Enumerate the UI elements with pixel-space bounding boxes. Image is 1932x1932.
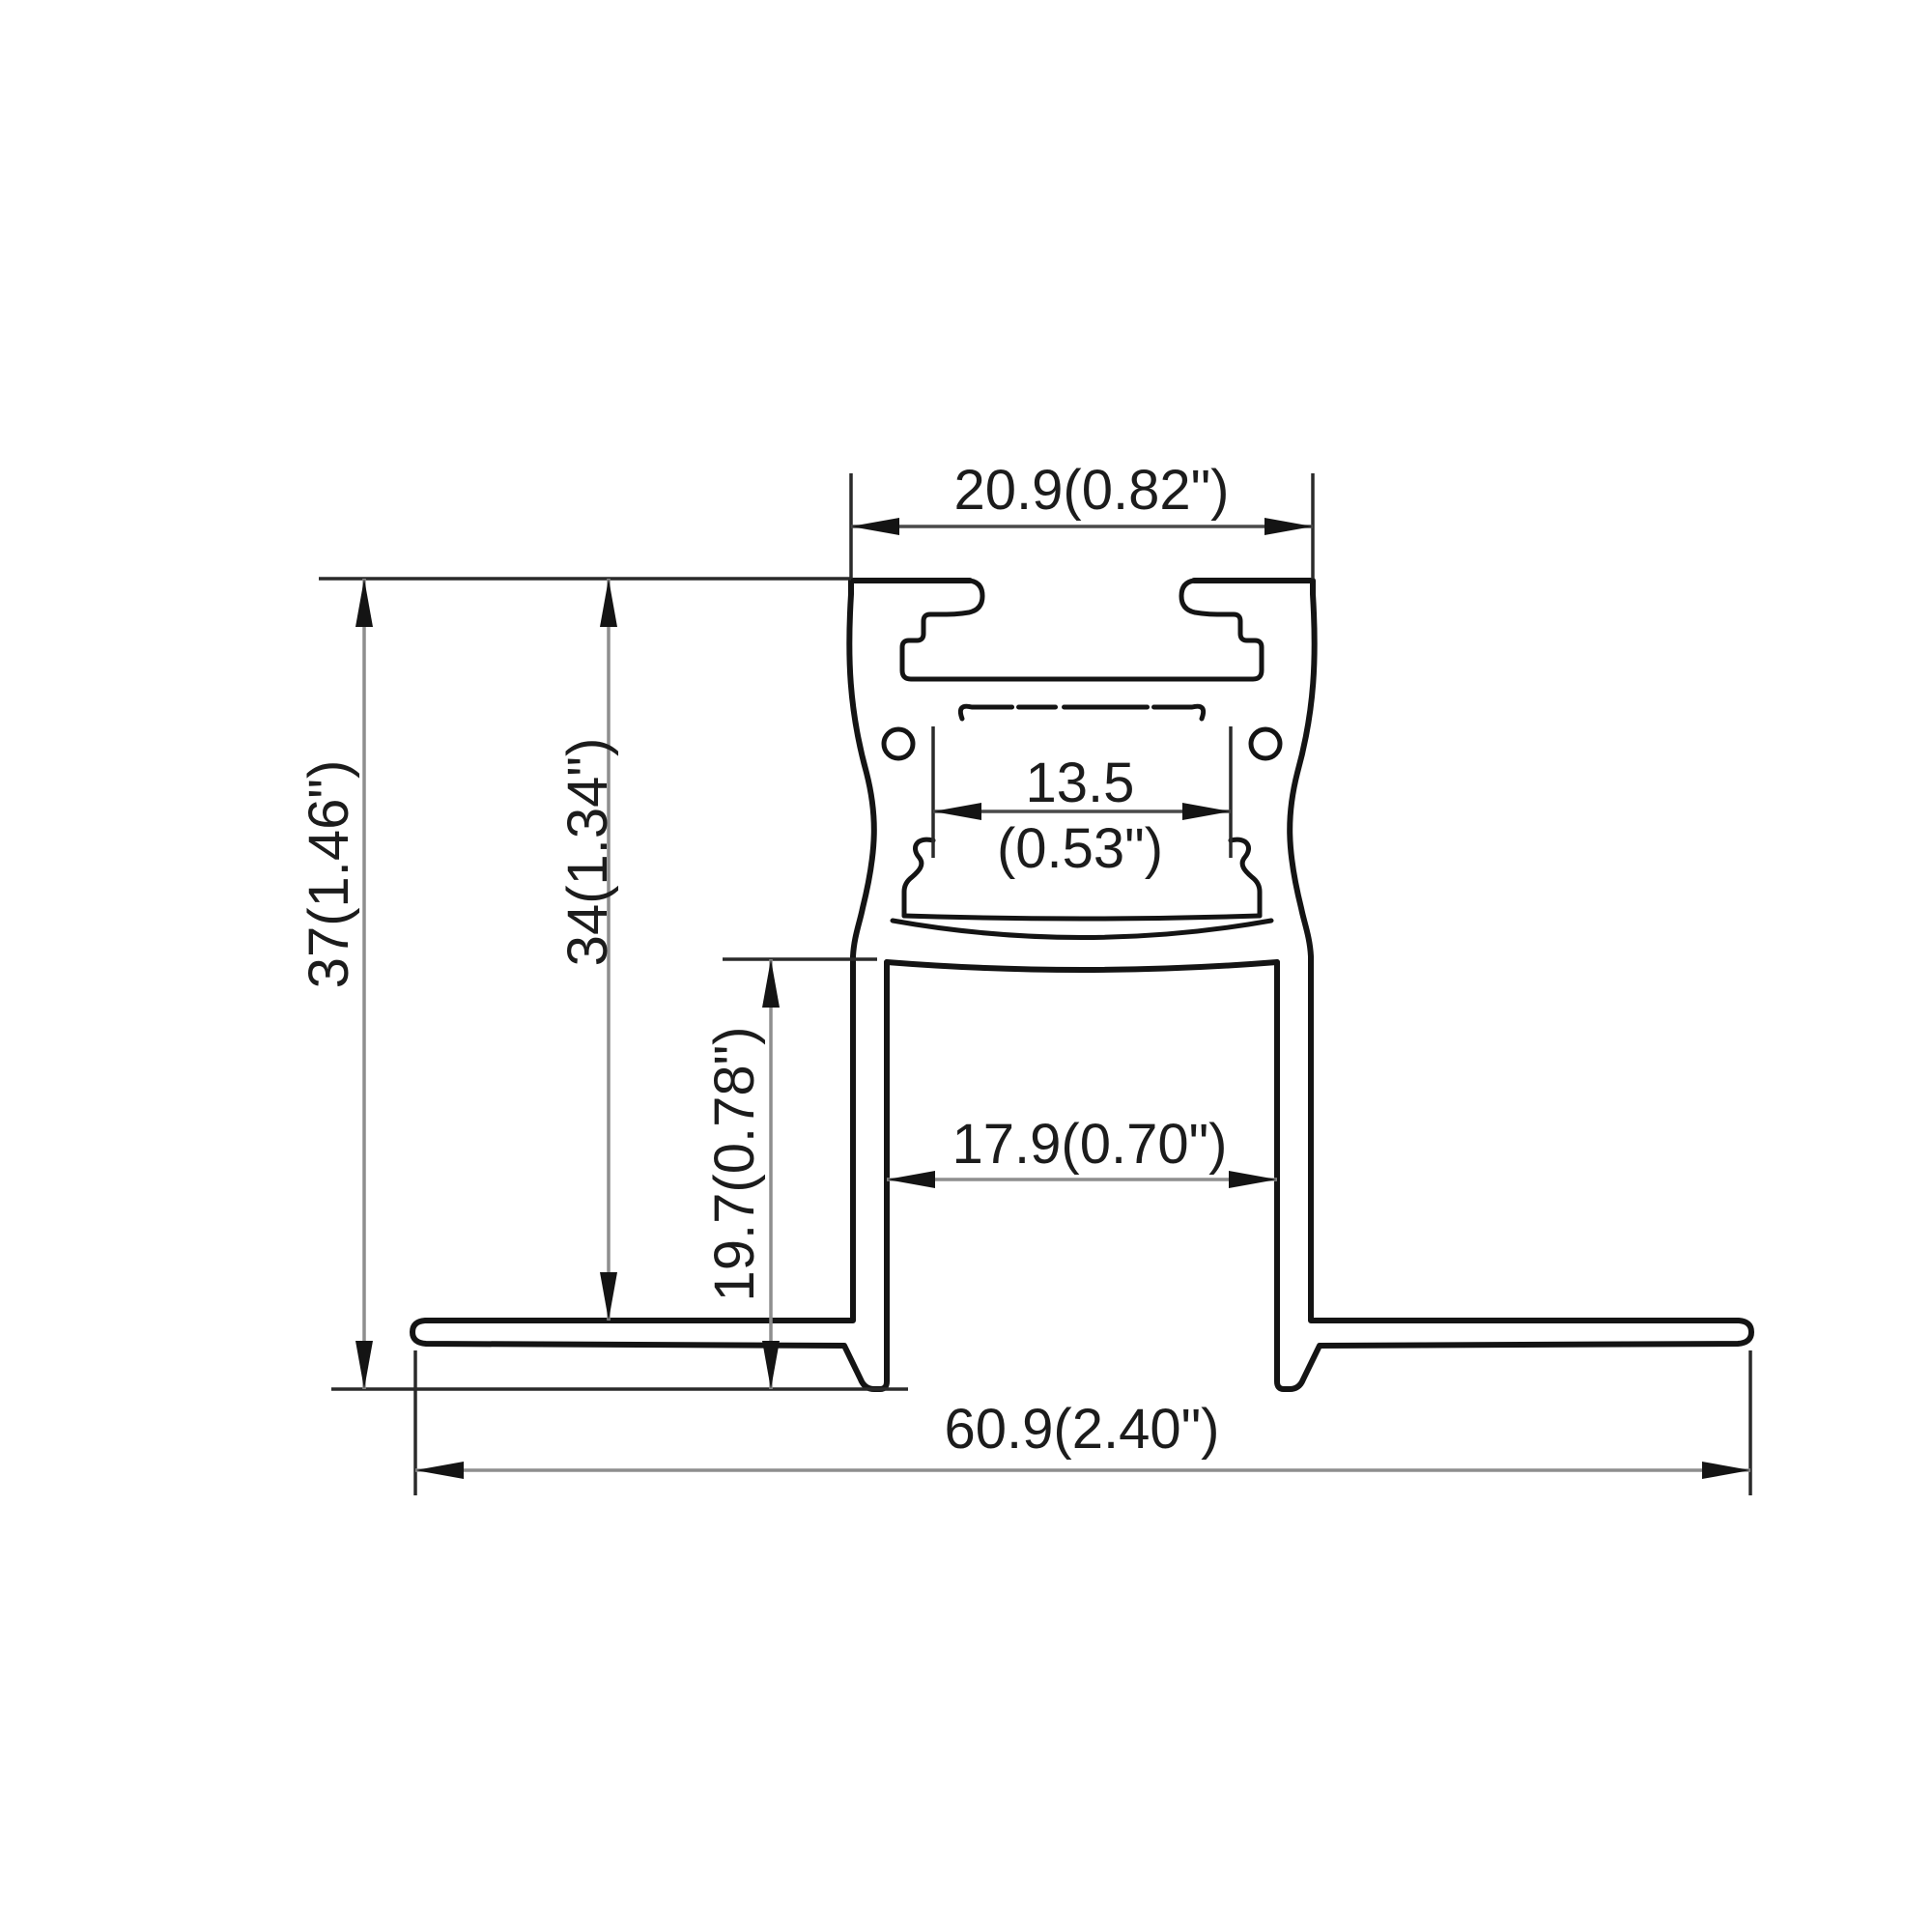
- slot-width-in-label: (0.53"): [997, 817, 1163, 880]
- overall-height-label: 37(1.46"): [298, 760, 360, 989]
- top-width-label: 20.9(0.82"): [954, 459, 1230, 522]
- arrowhead-left: [933, 803, 981, 820]
- arrowhead-up: [600, 579, 617, 627]
- arrowhead-left: [415, 1462, 464, 1479]
- opening-width-label: 17.9(0.70"): [952, 1113, 1228, 1176]
- dimension-slot-width: 13.5 (0.53"): [933, 752, 1231, 880]
- diffuser-lower-arc: [893, 921, 1271, 938]
- leg-height-label: 19.7(0.78"): [703, 1027, 766, 1302]
- dimension-top-width: 20.9(0.82"): [851, 459, 1313, 535]
- arrowhead-right: [1182, 803, 1231, 820]
- dimension-overall-height: 37(1.46"): [298, 579, 373, 1389]
- profile-right-silhouette: [1194, 581, 1751, 1389]
- left-lower-hook: [904, 839, 933, 916]
- profile-cross-section-drawing: 20.9(0.82") 13.5 (0.53") 37(1.46") 34(1.…: [0, 0, 1932, 1932]
- right-lower-hook: [1231, 839, 1260, 916]
- recess-height-label: 34(1.34"): [556, 738, 619, 967]
- profile-left-silhouette: [412, 581, 970, 1389]
- dimension-recess-height: 34(1.34"): [556, 579, 619, 1321]
- dimension-leg-height: 19.7(0.78"): [703, 959, 780, 1389]
- arrowhead-up: [355, 579, 373, 627]
- arrowhead-down: [600, 1272, 617, 1321]
- top-channel-hooks-and-shelf: [902, 581, 1262, 679]
- arrowhead-down: [355, 1341, 373, 1389]
- right-clip-nub: [1251, 729, 1280, 758]
- drawing-page: 20.9(0.82") 13.5 (0.53") 37(1.46") 34(1.…: [0, 0, 1932, 1932]
- arrowhead-up: [762, 959, 780, 1008]
- arrowhead-right: [1264, 518, 1313, 535]
- arrowhead-left: [887, 1171, 935, 1188]
- left-clip-nub: [884, 729, 913, 758]
- serrated-led-slot-ceiling: [960, 706, 1203, 719]
- dimension-overall-width: 60.9(2.40"): [415, 1398, 1750, 1479]
- profile-bottom-arc: [887, 962, 1277, 970]
- diffuser-upper-arc: [904, 916, 1260, 919]
- profile-outline: [412, 581, 1751, 1389]
- overall-width-label: 60.9(2.40"): [945, 1398, 1220, 1461]
- arrowhead-right: [1702, 1462, 1750, 1479]
- arrowhead-left: [851, 518, 899, 535]
- dimension-opening-width: 17.9(0.70"): [887, 1113, 1277, 1188]
- arrowhead-down: [762, 1341, 780, 1389]
- slot-width-mm-label: 13.5: [1026, 752, 1135, 814]
- arrowhead-right: [1229, 1171, 1277, 1188]
